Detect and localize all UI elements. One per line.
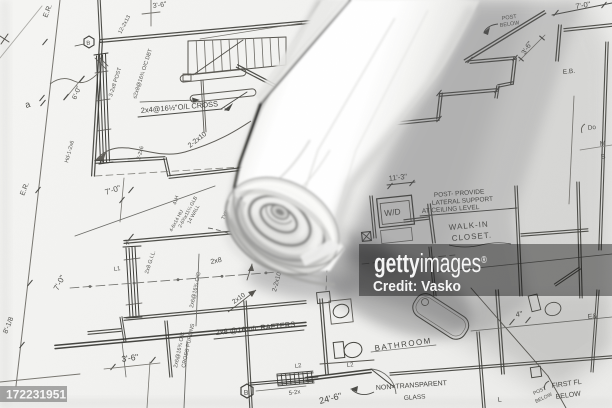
svg-text:Credit: Vasko: Credit: Vasko (373, 278, 461, 294)
svg-text:172231951: 172231951 (6, 388, 66, 402)
svg-text:gettyimages®: gettyimages® (374, 249, 487, 277)
